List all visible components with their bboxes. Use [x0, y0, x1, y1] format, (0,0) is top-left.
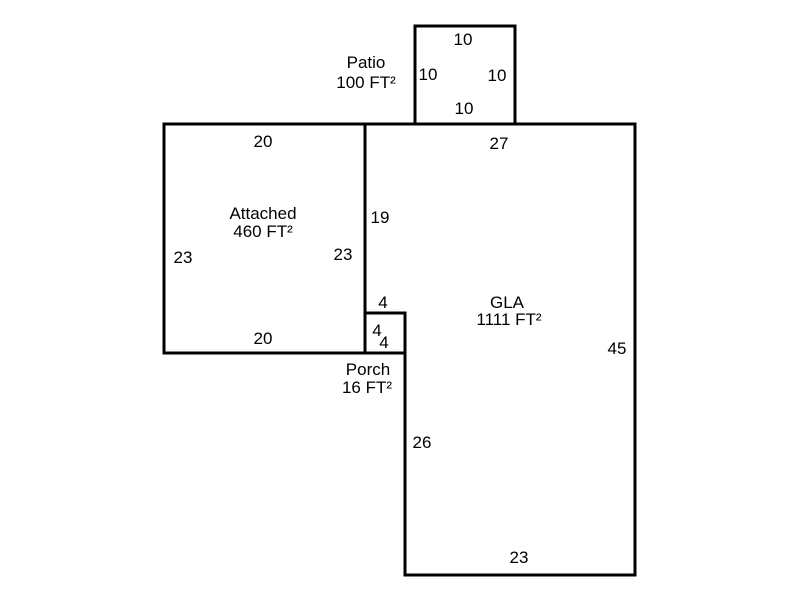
gla-dim-left-lower: 26: [413, 433, 432, 452]
porch-area-label: 16 FT²: [342, 378, 392, 397]
patio-dim-left: 10: [419, 65, 438, 84]
porch-name-label: Porch: [346, 360, 390, 379]
attached-dim-bottom: 20: [254, 329, 273, 348]
gla-dim-left-upper: 19: [371, 208, 390, 227]
attached-dim-left: 23: [174, 248, 193, 267]
patio-area-label: 100 FT²: [336, 73, 396, 92]
patio-dim-top: 10: [454, 30, 473, 49]
attached-dim-top: 20: [254, 132, 273, 151]
attached-name-label: Attached: [229, 204, 296, 223]
patio-name-label: Patio: [347, 53, 386, 72]
gla-dim-notch: 4: [378, 293, 387, 312]
floorplan-canvas: 10 10 10 10 Patio 100 FT² 20 Attached 46…: [0, 0, 800, 600]
gla-area-label: 1111 FT²: [476, 310, 542, 329]
attached-area-label: 460 FT²: [233, 222, 293, 241]
gla-dim-right: 45: [608, 339, 627, 358]
patio-dim-bottom: 10: [455, 99, 474, 118]
gla-dim-bottom: 23: [510, 548, 529, 567]
floorplan-sketch: 10 10 10 10 Patio 100 FT² 20 Attached 46…: [0, 0, 800, 600]
porch-dim-bottom: 4: [379, 333, 388, 352]
patio-dim-right: 10: [488, 66, 507, 85]
attached-dim-right: 23: [334, 245, 353, 264]
gla-dim-top: 27: [490, 134, 509, 153]
